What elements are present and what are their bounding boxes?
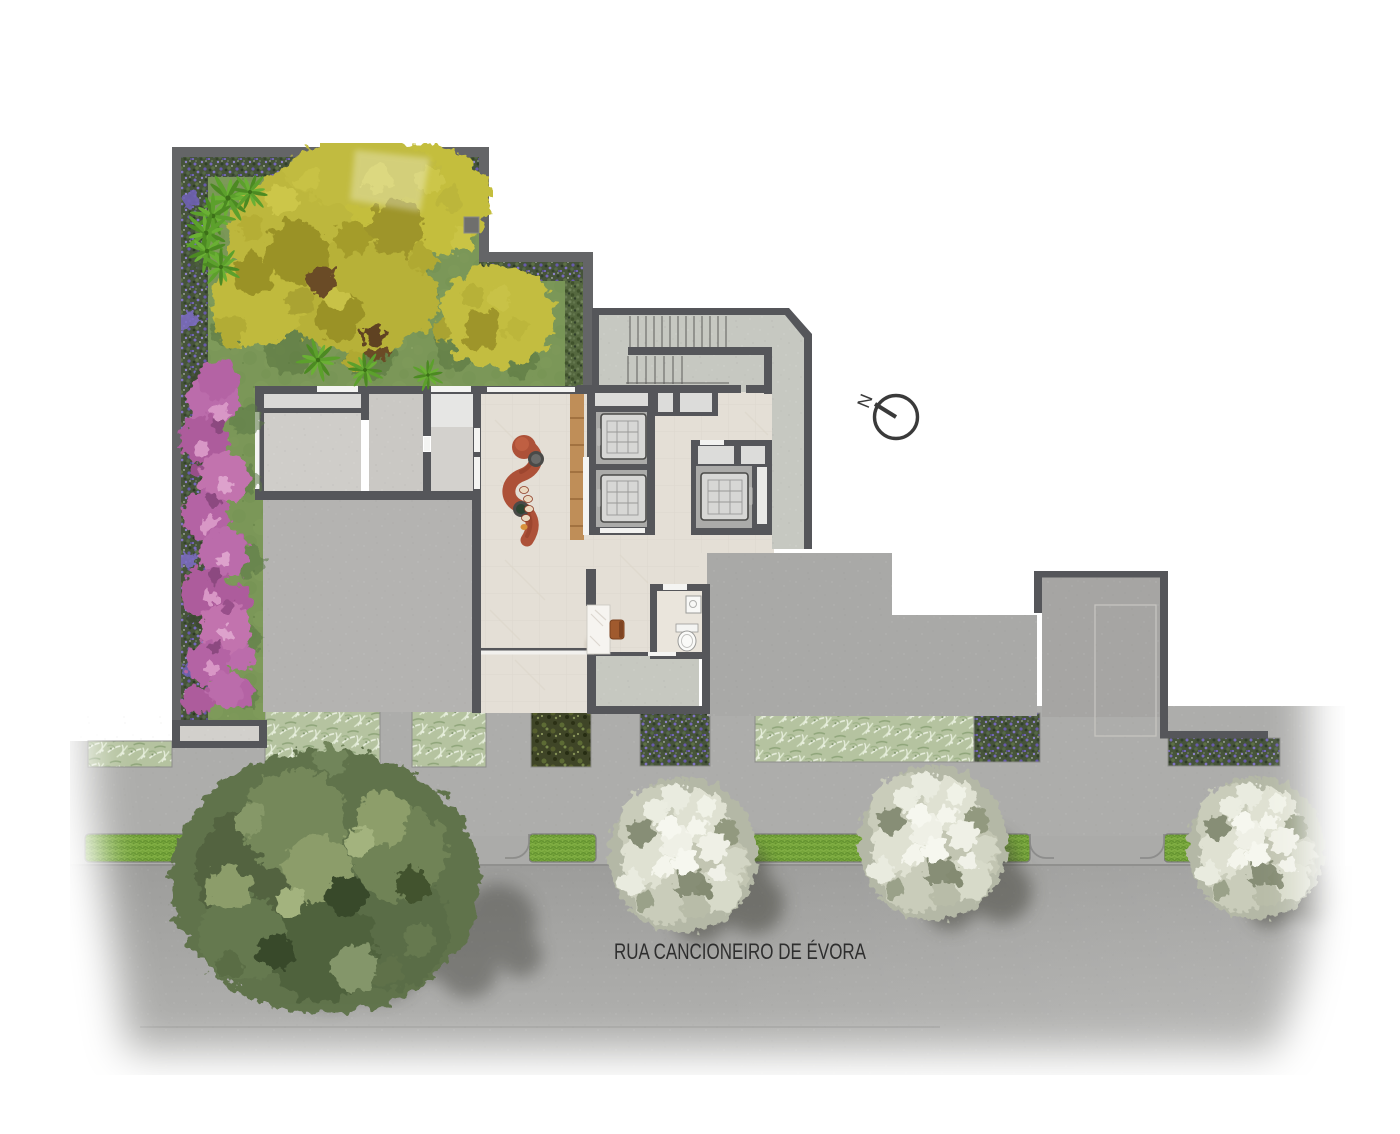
svg-text:RUA CANCIONEIRO DE ÉVORA: RUA CANCIONEIRO DE ÉVORA — [614, 939, 866, 964]
